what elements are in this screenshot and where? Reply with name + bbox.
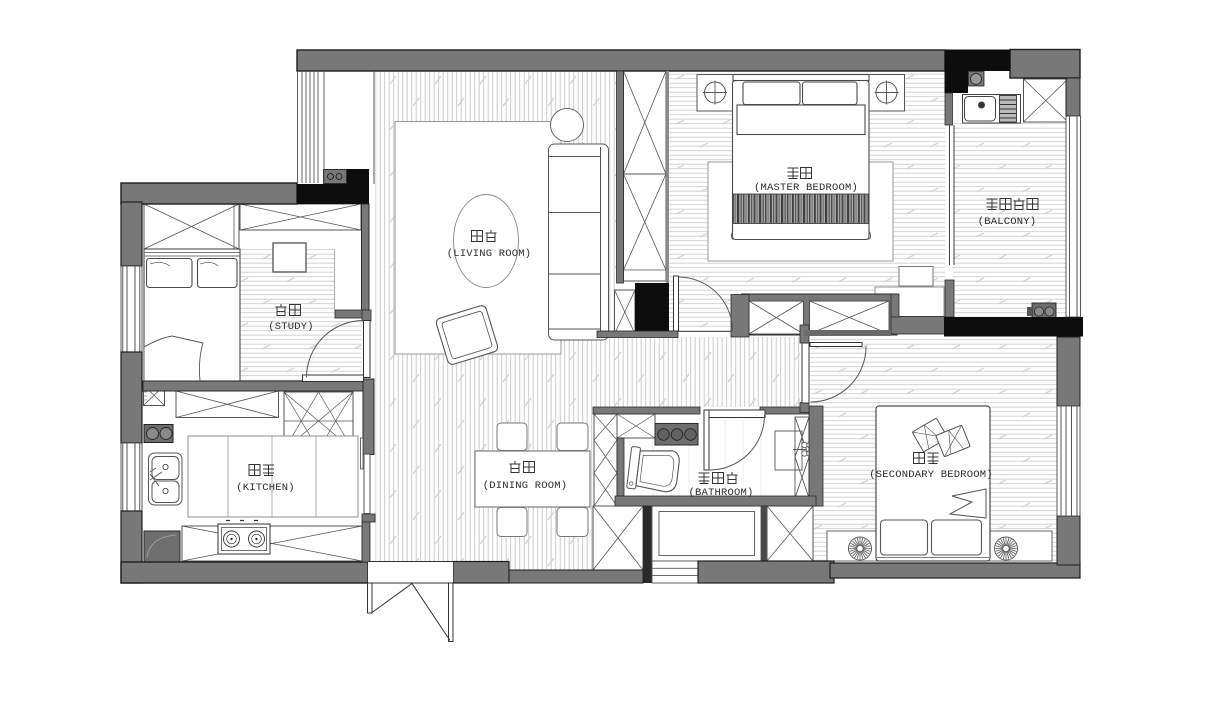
- svg-text:(BATHROOM): (BATHROOM): [688, 487, 753, 499]
- svg-text:(MASTER BEDROOM): (MASTER BEDROOM): [754, 182, 858, 194]
- svg-text:(SECONDARY BEDROOM): (SECONDARY BEDROOM): [869, 469, 993, 481]
- svg-text:(BALCONY): (BALCONY): [978, 216, 1037, 228]
- svg-text:(LIVING ROOM): (LIVING ROOM): [447, 248, 532, 260]
- svg-text:(KITCHEN): (KITCHEN): [236, 482, 295, 494]
- svg-text:(STUDY): (STUDY): [268, 321, 314, 333]
- svg-text:(DINING ROOM): (DINING ROOM): [483, 480, 568, 492]
